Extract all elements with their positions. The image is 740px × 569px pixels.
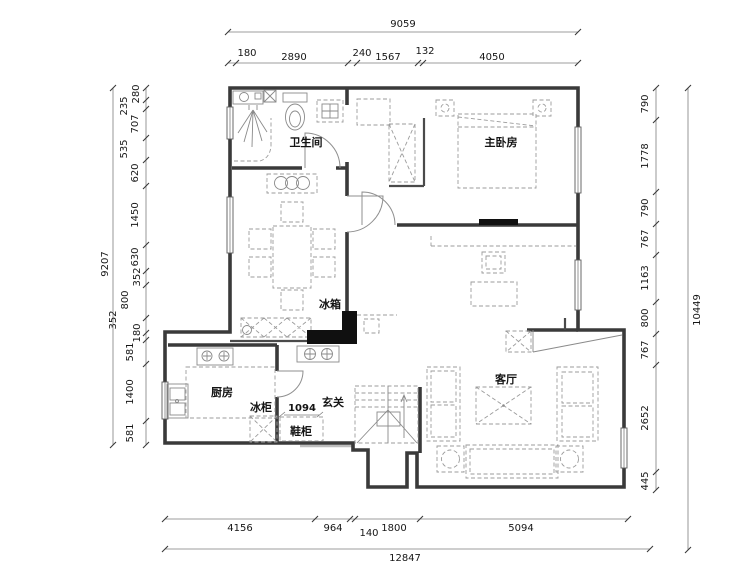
dim-right-segments: 790 1778 790 767 1163 800 767 2652 445 [640,85,659,493]
dim-label: 790 [640,198,651,217]
kitchen-sink [167,384,188,418]
side-table [556,446,583,472]
nightstand [436,100,454,116]
dim-label: 790 [640,94,651,113]
ceiling-line [431,236,576,246]
dim-label: 180 [237,48,256,59]
dim-label: 630 [130,247,141,266]
chair [249,229,271,249]
dim-label: 12847 [389,553,421,564]
stove [197,348,233,365]
dim-label: 767 [640,229,651,248]
dim-left-segments: 280 235 707 535 620 1450 630 352 800 352… [108,84,149,448]
dim-label: 235 [119,96,130,115]
dim-label: 4156 [227,523,252,534]
window [227,107,233,139]
dining-table [273,226,311,288]
dining-door [347,196,383,232]
doors [277,133,395,397]
label-kitchen: 厨房 [211,385,233,399]
dim-label: 280 [131,84,142,103]
dim-label: 707 [130,114,141,133]
dim-label: 9207 [100,251,111,276]
closet [357,99,390,125]
dim-left-total: 9207 [100,85,116,448]
low-cabinet [241,318,311,337]
wardrobe [389,124,415,182]
dim-bottom-segments: 4156 964 140 1800 5094 [162,516,631,539]
dim-label: 10449 [692,294,703,326]
window [575,127,581,193]
chair [313,229,335,249]
sofa-left [427,367,460,441]
label-living-room: 客厅 [494,372,517,386]
dim-label: 800 [120,290,131,309]
dim-label: 352 [108,310,119,329]
side-table [437,446,464,472]
label-master-bedroom: 主卧房 [485,135,518,149]
dim-label: 1567 [375,52,400,63]
dim-label: 581 [125,423,136,442]
dim-label: 4050 [479,52,504,63]
kitchen-door [277,371,303,397]
bed [458,114,536,188]
outer-wall [165,88,624,487]
washing-machine [317,100,343,122]
sideboard [267,174,317,193]
dim-label: 1450 [130,202,141,227]
dim-label: 767 [640,340,651,359]
dim-label: 535 [119,139,130,158]
window [575,260,581,310]
bathroom-dining-wall [232,162,348,312]
dim-label: 1163 [640,265,651,290]
angled-cabinet [533,330,622,352]
dim-label: 620 [130,163,141,182]
chair [482,252,505,273]
chair [249,257,271,277]
shower [234,105,271,161]
console-table [297,346,339,362]
tv-bench [466,445,558,478]
dim-label: 240 [352,48,371,59]
dim-label: 2890 [281,52,306,63]
dim-label: 140 [359,528,378,539]
bedroom-furniture [436,100,551,225]
walls [165,88,624,487]
label-bathroom: 卫生间 [290,135,323,149]
bedroom-door [362,192,395,225]
window [227,197,233,253]
dim-right-total: 10449 [685,85,703,553]
toilet [283,93,307,130]
dim-label: 180 [132,323,143,342]
dim-bottom-total: 12847 [162,546,653,564]
freezer [250,416,277,442]
label-entrance: 玄关 [322,395,344,409]
dining-furniture [241,174,397,344]
chair [281,202,303,222]
side-table [471,282,517,306]
label-fridge: 冰箱 [319,297,341,311]
label-entry-width: 1094 [288,403,316,414]
dim-label: 800 [640,308,651,327]
dim-label: 1400 [125,379,136,404]
dim-label: 581 [125,342,136,361]
chair [313,257,335,277]
dim-label: 964 [323,523,342,534]
window [621,428,627,468]
dim-label: 132 [415,46,434,57]
living-furniture [427,330,622,478]
floor-plan-drawing: 9059 180 2890 240 1567 132 4050 4156 964… [0,0,740,569]
nightstand [533,100,551,116]
label-shoe-cabinet: 鞋柜 [290,424,312,438]
small-cabinet [364,319,379,333]
corner-cabinet [506,331,531,352]
hall-furniture [431,236,576,306]
wardrobe-wall [389,118,424,186]
rug-coffee-table [476,387,531,424]
bathroom-fixtures [233,90,343,161]
dim-top-total: 9059 [225,19,581,35]
staircase [355,386,418,443]
chair [281,290,303,310]
dim-label: 1778 [640,143,651,168]
wall-vent [264,90,276,102]
dim-label: 445 [640,471,651,490]
dim-label: 5094 [508,523,533,534]
dim-label: 2652 [640,405,651,430]
hall-closets [357,99,415,182]
tv-unit [479,219,518,225]
dim-label: 352 [132,267,143,286]
fridge-unit [307,311,357,344]
dim-top-segments: 180 2890 240 1567 132 4050 [225,46,581,66]
sofa-right [557,367,598,441]
vanity-sink [233,91,263,104]
floor-plan-page: 9059 180 2890 240 1567 132 4050 4156 964… [0,0,740,569]
dim-label: 1800 [381,523,406,534]
dim-label: 9059 [390,19,415,30]
label-freezer: 冰柜 [250,400,272,414]
